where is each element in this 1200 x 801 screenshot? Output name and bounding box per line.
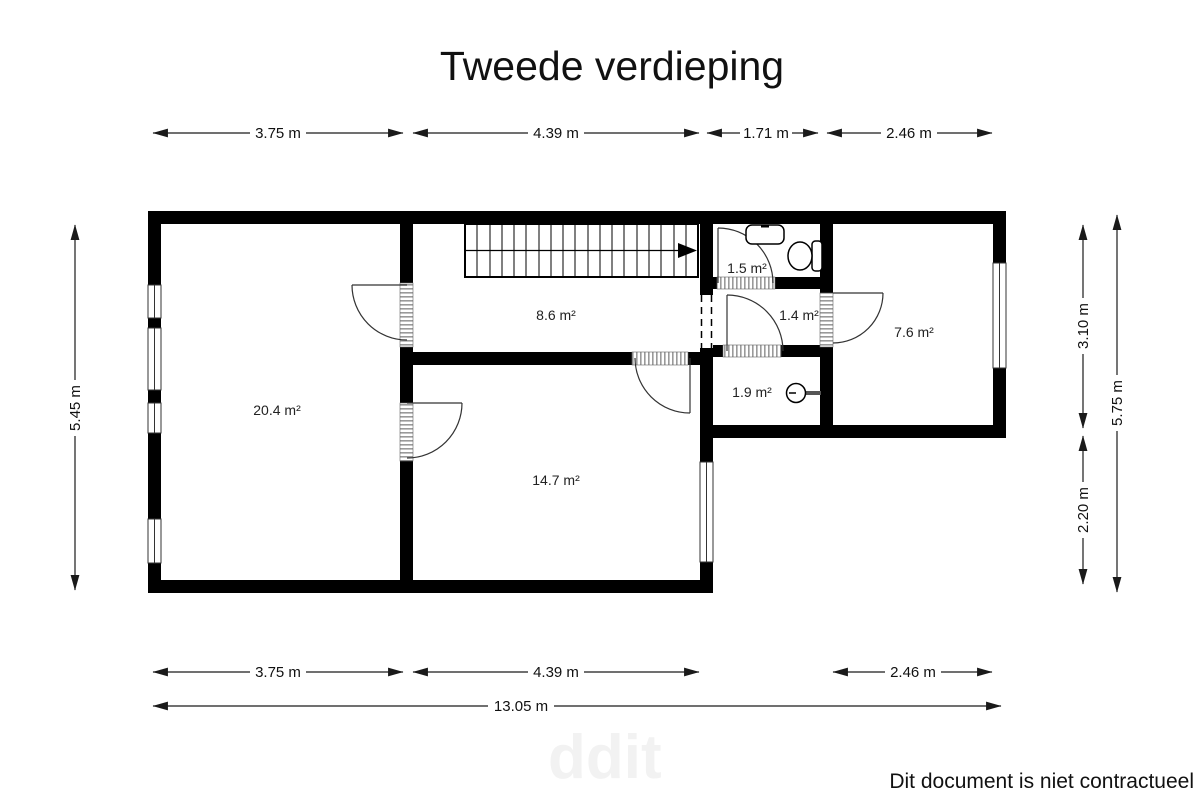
wall-opening-dashed xyxy=(700,295,713,348)
dim-label-bottom-3: 2.46 m xyxy=(890,664,936,681)
dim-label-right-1: 3.10 m xyxy=(1075,303,1092,349)
dim-label-top-1: 3.75 m xyxy=(255,125,301,142)
dim-label-right-total: 5.75 m xyxy=(1109,380,1126,426)
floorplan-page: Tweede verdieping ddit xyxy=(0,0,1200,801)
toilet-icon xyxy=(788,241,822,271)
room-area-label: 1.9 m² xyxy=(732,384,772,400)
window xyxy=(148,403,161,433)
door xyxy=(635,358,690,413)
sink-icon xyxy=(746,225,784,244)
window xyxy=(148,519,161,563)
window xyxy=(148,285,161,318)
room-area-label: 8.6 m² xyxy=(536,307,576,323)
dim-label-top-2: 4.39 m xyxy=(533,125,579,142)
room-area-label: 14.7 m² xyxy=(532,472,580,488)
watermark: ddit xyxy=(548,723,662,792)
dim-label-total-width: 13.05 m xyxy=(494,698,548,715)
door xyxy=(352,285,407,340)
dim-label-bottom-2: 4.39 m xyxy=(533,664,579,681)
floorplan-drawing: Tweede verdieping ddit xyxy=(0,0,1200,801)
room-area-label: 1.4 m² xyxy=(779,307,819,323)
dim-label-right-2: 2.20 m xyxy=(1075,487,1092,533)
shower-icon xyxy=(787,384,822,403)
door xyxy=(727,295,783,351)
dim-label-top-3: 1.71 m xyxy=(743,125,789,142)
window xyxy=(148,328,161,390)
door xyxy=(833,293,883,343)
dim-label-left: 5.45 m xyxy=(67,385,84,431)
dim-label-bottom-1: 3.75 m xyxy=(255,664,301,681)
door xyxy=(407,403,462,458)
room-area-label: 1.5 m² xyxy=(727,260,767,276)
disclaimer-text: Dit document is niet contractueel xyxy=(889,770,1194,793)
room-area-label: 20.4 m² xyxy=(253,402,301,418)
dim-label-top-4: 2.46 m xyxy=(886,125,932,142)
page-title: Tweede verdieping xyxy=(440,43,784,89)
window xyxy=(993,263,1006,368)
stairs xyxy=(465,224,698,277)
room-area-label: 7.6 m² xyxy=(894,324,934,340)
window xyxy=(700,462,713,562)
